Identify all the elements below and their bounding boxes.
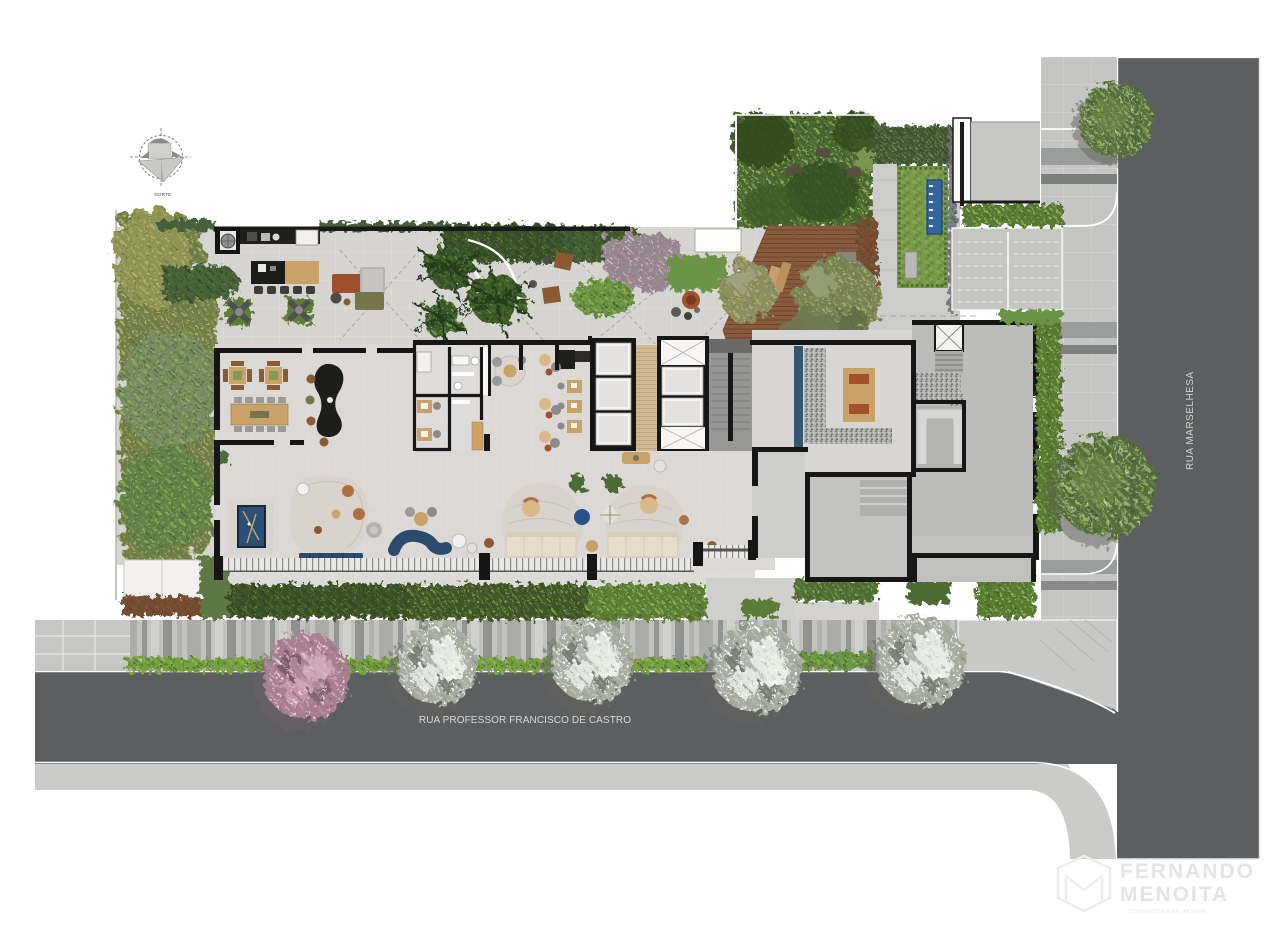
svg-text:CONSULTORIA DE IMOVEIS: CONSULTORIA DE IMOVEIS	[1129, 909, 1206, 915]
svg-text:NORTE: NORTE	[154, 192, 171, 197]
svg-text:MENOITA: MENOITA	[1120, 883, 1229, 906]
svg-text:RUA PROFESSOR FRANCISCO DE CAS: RUA PROFESSOR FRANCISCO DE CASTRO	[419, 715, 631, 726]
svg-text:FERNANDO: FERNANDO	[1120, 860, 1255, 883]
svg-text:RUA MARSELHESA: RUA MARSELHESA	[1185, 371, 1196, 470]
